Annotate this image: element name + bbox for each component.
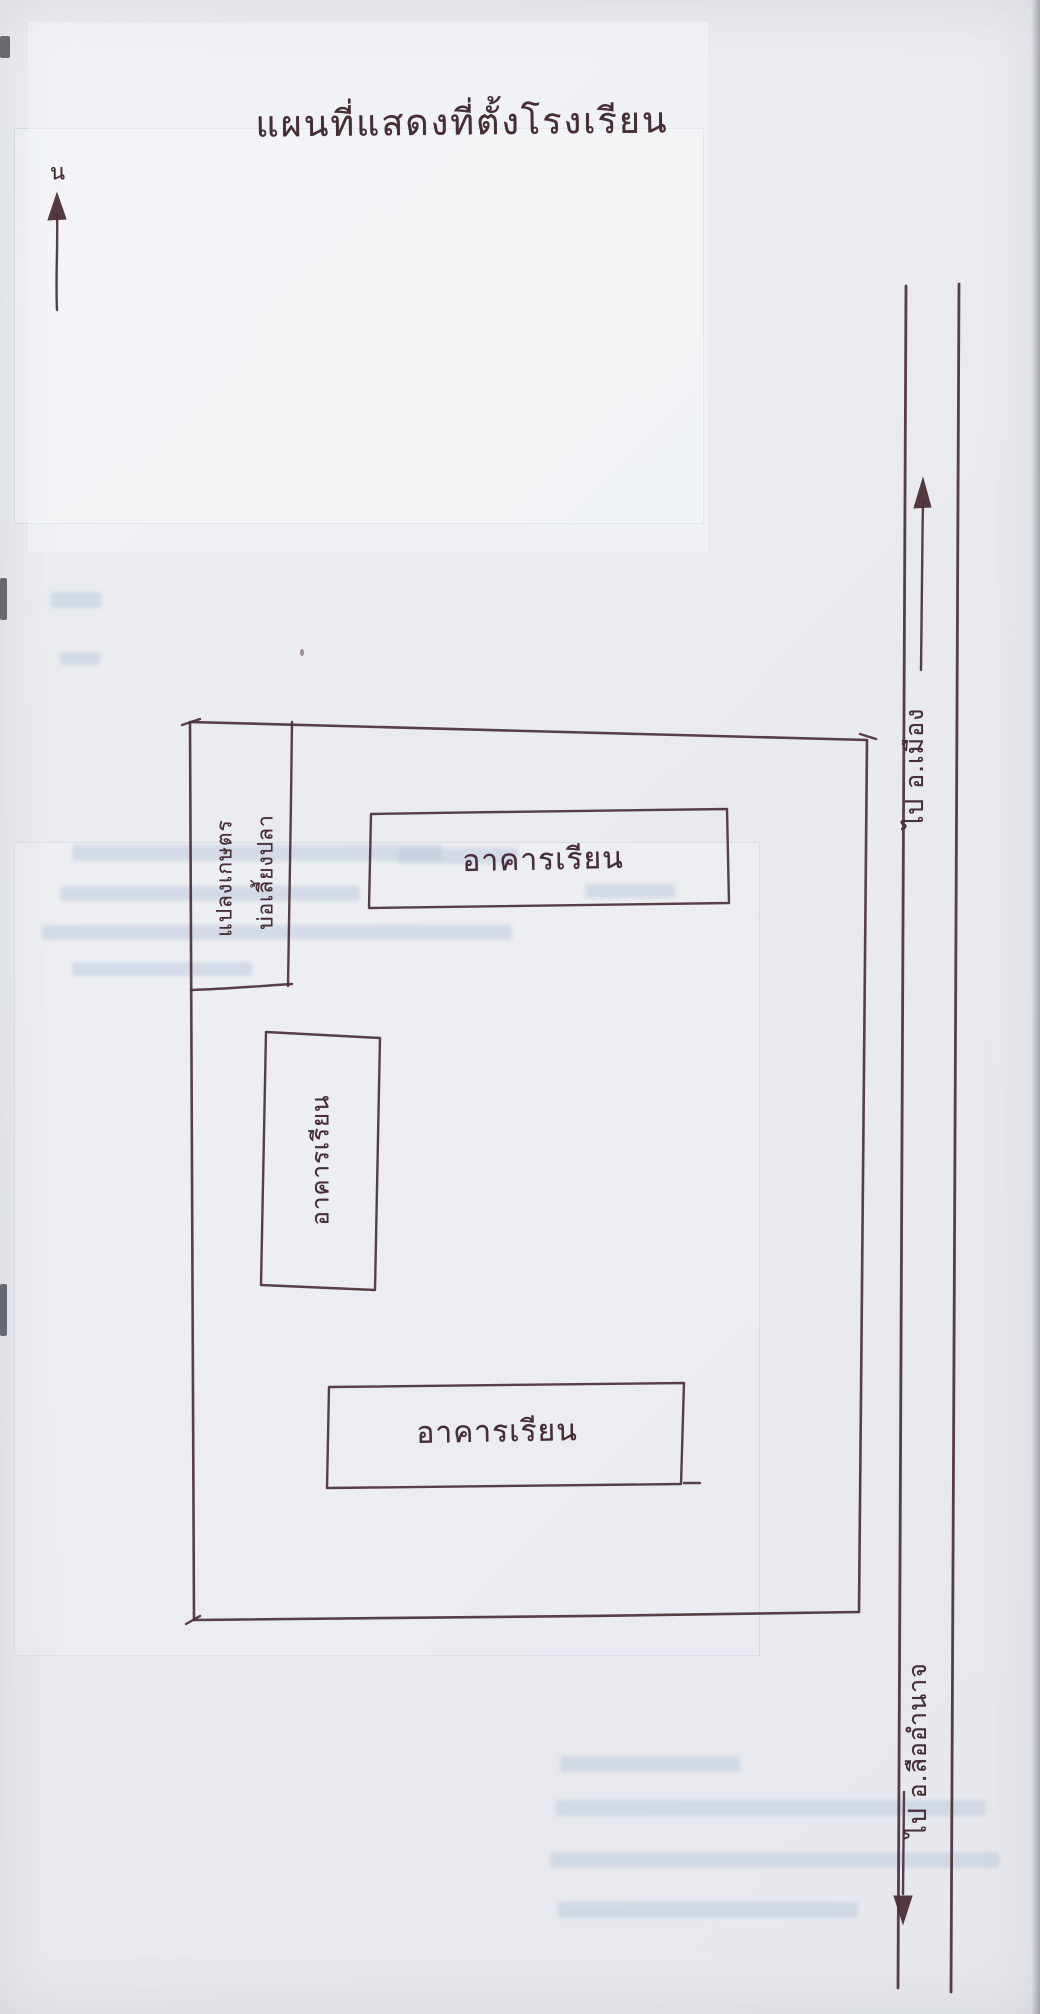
road bbox=[894, 284, 959, 1992]
road-up-arrow bbox=[921, 502, 923, 670]
road-line-right bbox=[951, 284, 959, 1992]
scanned-page: แผนที่แสดงที่ตั้งโรงเรียน น อาคารเรียน อ… bbox=[0, 0, 1040, 2014]
corner-box-outline bbox=[191, 722, 292, 990]
road-line-left bbox=[898, 286, 906, 1988]
school-compound-outline bbox=[182, 719, 876, 1624]
map-sketch bbox=[0, 0, 1040, 2014]
north-arrow-icon bbox=[48, 193, 66, 310]
upper-building-outline bbox=[369, 809, 729, 908]
lower-building-outline bbox=[327, 1383, 684, 1488]
left-vertical-building-outline bbox=[261, 1032, 380, 1290]
road-down-arrow bbox=[903, 1792, 904, 1894]
